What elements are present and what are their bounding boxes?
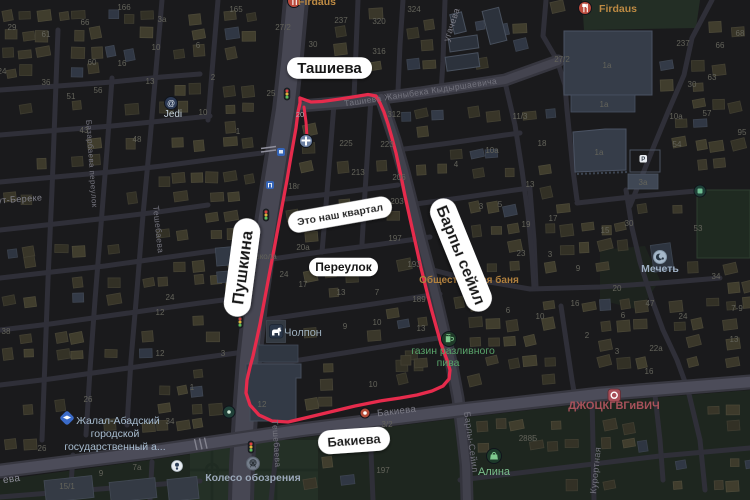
svg-text:1а: 1а — [595, 148, 604, 157]
svg-text:3: 3 — [615, 347, 620, 356]
svg-text:9: 9 — [576, 264, 581, 273]
svg-text:20: 20 — [296, 110, 304, 119]
svg-text:12: 12 — [156, 308, 165, 317]
svg-text:18: 18 — [538, 139, 547, 148]
svg-text:12: 12 — [156, 349, 165, 358]
svg-text:5: 5 — [498, 200, 503, 209]
svg-text:13: 13 — [337, 288, 346, 297]
svg-text:24: 24 — [166, 293, 175, 302]
svg-text:27/2: 27/2 — [275, 23, 291, 32]
svg-text:государственный а...: государственный а... — [64, 441, 165, 453]
svg-text:1: 1 — [190, 383, 195, 392]
svg-text:27/2: 27/2 — [554, 55, 570, 64]
svg-text:48: 48 — [133, 135, 142, 144]
svg-text:Firdaus: Firdaus — [298, 0, 336, 8]
svg-text:10: 10 — [373, 318, 382, 327]
svg-text:газин разливного: газин разливного — [411, 345, 495, 357]
svg-text:3а: 3а — [639, 178, 648, 187]
svg-text:24: 24 — [280, 270, 289, 279]
svg-text:206: 206 — [392, 173, 406, 182]
svg-text:225: 225 — [339, 139, 353, 148]
svg-text:1а: 1а — [600, 100, 609, 109]
svg-text:66: 66 — [716, 41, 725, 50]
svg-text:16: 16 — [571, 299, 580, 308]
svg-text:237: 237 — [676, 39, 690, 48]
svg-text:6: 6 — [196, 41, 201, 50]
svg-text:60: 60 — [88, 58, 97, 67]
svg-text:13: 13 — [526, 180, 535, 189]
svg-text:Переулок: Переулок — [315, 260, 372, 274]
svg-text:23: 23 — [517, 249, 526, 258]
svg-text:197: 197 — [376, 466, 390, 475]
svg-text:ДЖОЦКГВГиВИЧ: ДЖОЦКГВГиВИЧ — [568, 400, 659, 412]
svg-text:36: 36 — [42, 78, 51, 87]
svg-text:10: 10 — [199, 108, 208, 117]
svg-text:20а: 20а — [296, 243, 310, 252]
svg-text:47: 47 — [646, 299, 655, 308]
svg-text:3а: 3а — [158, 15, 167, 24]
svg-text:Jedi: Jedi — [164, 109, 182, 120]
svg-text:30: 30 — [688, 80, 697, 89]
svg-text:17: 17 — [549, 214, 558, 223]
svg-text:26: 26 — [38, 444, 47, 453]
svg-text:29: 29 — [8, 23, 17, 32]
svg-text:@: @ — [167, 99, 175, 108]
svg-text:Алина: Алина — [478, 466, 511, 478]
svg-text:63: 63 — [708, 73, 717, 82]
svg-text:193: 193 — [407, 260, 421, 269]
svg-text:95: 95 — [738, 128, 747, 137]
svg-text:4: 4 — [454, 160, 459, 169]
svg-text:13: 13 — [730, 335, 739, 344]
svg-text:288Б: 288Б — [519, 434, 538, 443]
svg-text:320: 320 — [372, 17, 386, 26]
svg-text:9: 9 — [99, 469, 104, 478]
svg-text:15: 15 — [601, 226, 610, 235]
svg-text:197: 197 — [388, 234, 402, 243]
svg-text:166: 166 — [117, 3, 131, 12]
svg-text:30: 30 — [625, 219, 634, 228]
svg-text:Колесо обозрения: Колесо обозрения — [205, 472, 301, 484]
svg-text:3: 3 — [221, 349, 226, 358]
svg-text:7а: 7а — [133, 463, 142, 472]
svg-text:пива: пива — [437, 357, 460, 369]
svg-text:3: 3 — [548, 250, 553, 259]
svg-text:7: 7 — [375, 288, 380, 297]
svg-text:22а: 22а — [649, 344, 663, 353]
svg-text:12: 12 — [258, 400, 267, 409]
svg-text:54: 54 — [673, 140, 682, 149]
svg-text:24: 24 — [0, 67, 7, 76]
svg-text:43: 43 — [80, 126, 89, 135]
svg-text:237: 237 — [334, 16, 348, 25]
svg-text:20: 20 — [613, 284, 622, 293]
svg-text:53: 53 — [694, 224, 703, 233]
svg-text:324: 324 — [407, 5, 421, 14]
svg-text:203: 203 — [390, 197, 404, 206]
svg-text:30: 30 — [309, 40, 318, 49]
svg-text:223: 223 — [380, 140, 394, 149]
svg-text:6: 6 — [506, 306, 511, 315]
svg-text:19: 19 — [522, 220, 531, 229]
svg-text:городской: городской — [91, 428, 140, 440]
svg-text:312: 312 — [387, 110, 401, 119]
svg-text:10: 10 — [536, 312, 545, 321]
svg-text:3/2: 3/2 — [381, 420, 393, 429]
svg-text:34: 34 — [166, 417, 175, 426]
svg-text:1: 1 — [236, 127, 241, 136]
svg-text:316: 316 — [372, 47, 386, 56]
svg-text:3: 3 — [479, 202, 484, 211]
svg-text:2: 2 — [211, 73, 216, 82]
svg-text:Мечеть: Мечеть — [641, 263, 679, 275]
svg-text:10: 10 — [369, 380, 378, 389]
svg-text:61: 61 — [42, 30, 51, 39]
svg-text:68: 68 — [736, 29, 745, 38]
svg-text:2: 2 — [585, 331, 590, 340]
svg-text:Ташиева: Ташиева — [297, 60, 362, 77]
svg-text:66: 66 — [81, 18, 90, 27]
svg-text:13: 13 — [146, 77, 155, 86]
svg-text:38: 38 — [2, 327, 11, 336]
svg-text:10а: 10а — [669, 112, 683, 121]
svg-text:57: 57 — [703, 109, 712, 118]
svg-text:165: 165 — [229, 5, 243, 14]
svg-text:П: П — [268, 183, 273, 190]
svg-text:Firdaus: Firdaus — [599, 3, 637, 15]
svg-text:213: 213 — [351, 168, 365, 177]
svg-text:51: 51 — [67, 92, 76, 101]
svg-text:10а: 10а — [485, 146, 499, 155]
svg-text:7-9: 7-9 — [731, 304, 743, 313]
svg-text:18г: 18г — [288, 182, 300, 191]
svg-text:189: 189 — [412, 295, 426, 304]
svg-text:Жалал-Абадский: Жалал-Абадский — [76, 415, 160, 427]
svg-text:16: 16 — [645, 367, 654, 376]
svg-text:16: 16 — [118, 59, 127, 68]
svg-text:1а: 1а — [603, 61, 612, 70]
svg-text:17: 17 — [299, 280, 308, 289]
svg-text:24: 24 — [679, 312, 688, 321]
svg-text:34: 34 — [712, 272, 721, 281]
svg-text:11/3: 11/3 — [513, 112, 529, 121]
svg-text:Чолпон: Чолпон — [284, 327, 322, 339]
svg-text:10: 10 — [152, 43, 161, 52]
svg-text:6: 6 — [621, 311, 626, 320]
svg-text:15/1: 15/1 — [59, 482, 75, 491]
svg-text:Р: Р — [641, 157, 645, 163]
svg-text:26: 26 — [84, 395, 93, 404]
svg-text:9: 9 — [343, 322, 348, 331]
svg-text:56: 56 — [94, 86, 103, 95]
svg-text:25: 25 — [267, 89, 276, 98]
svg-text:13: 13 — [417, 324, 426, 333]
